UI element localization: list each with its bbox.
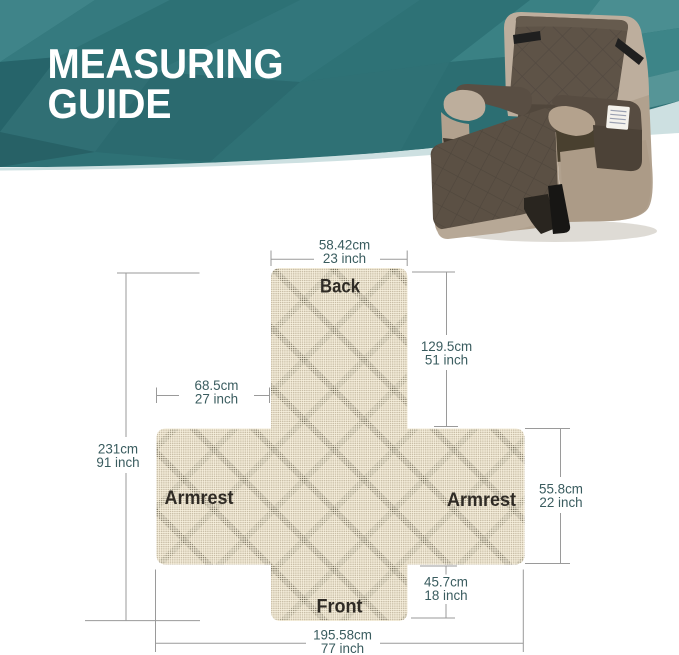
svg-text:18 inch: 18 inch — [424, 588, 467, 603]
svg-text:91 inch: 91 inch — [96, 455, 139, 470]
svg-text:Armrest: Armrest — [165, 488, 235, 509]
svg-text:22 inch: 22 inch — [539, 495, 582, 510]
svg-text:Back: Back — [320, 277, 360, 298]
svg-text:Front: Front — [317, 597, 364, 618]
svg-text:27 inch: 27 inch — [195, 392, 238, 407]
svg-text:Armrest: Armrest — [447, 490, 517, 511]
svg-text:23 inch: 23 inch — [323, 251, 366, 266]
svg-text:77 inch: 77 inch — [321, 641, 364, 655]
svg-text:51 inch: 51 inch — [425, 353, 468, 368]
